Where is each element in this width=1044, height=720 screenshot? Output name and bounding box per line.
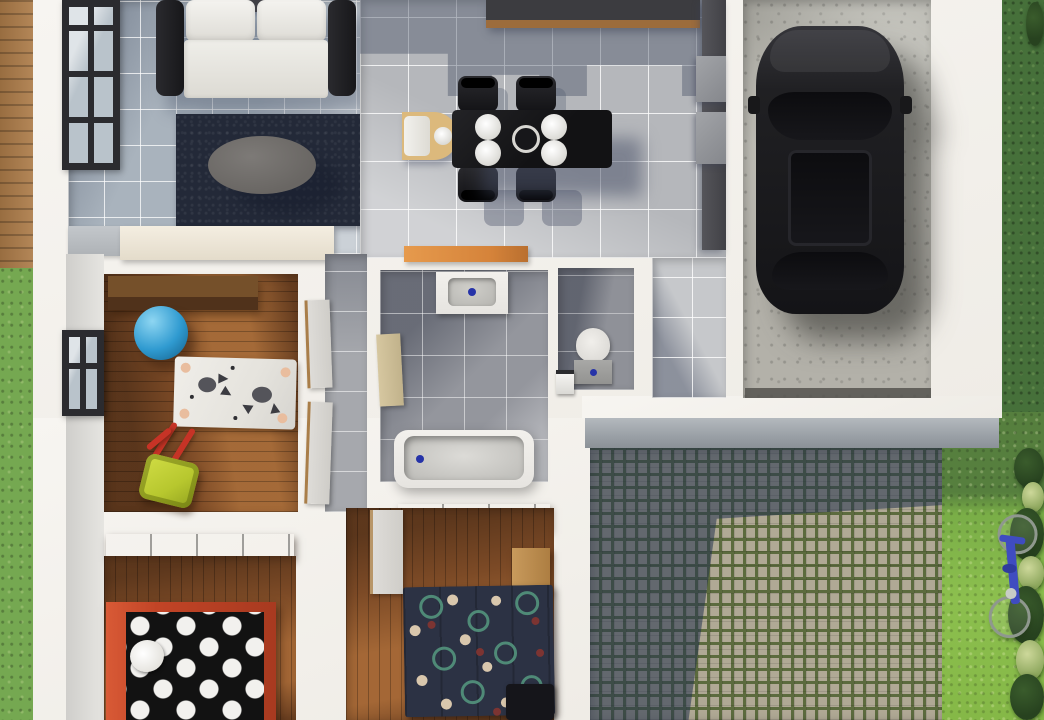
floor-plan-render (0, 0, 1044, 720)
rug-ring (467, 610, 489, 632)
bicycle-wheel-rear (988, 595, 1031, 638)
wardrobe (106, 534, 294, 558)
closet-door (304, 402, 333, 505)
living-room-window (62, 0, 120, 170)
toilet-tank (574, 360, 612, 384)
chair-back (519, 190, 553, 200)
car-mirror-left (748, 96, 760, 114)
window-glass (69, 337, 97, 409)
rug-dot (491, 596, 501, 606)
car-rear-window (772, 252, 888, 290)
bathroom-door (376, 333, 404, 406)
rug-dot (460, 634, 471, 645)
rug-ring (461, 680, 485, 704)
dining-chair (458, 166, 498, 202)
rug-dot (181, 363, 191, 373)
sideboard (120, 226, 334, 260)
toilet-flush-button (590, 369, 597, 376)
coffee-table (208, 136, 316, 194)
rug-dot (531, 617, 539, 625)
rug-ring (419, 595, 443, 619)
rug-dot (493, 708, 501, 716)
patio-ledge (585, 418, 999, 448)
bush (1026, 2, 1044, 46)
highchair-cushion (404, 116, 430, 156)
garage-threshold (745, 388, 931, 398)
patio-north-wall (582, 396, 1002, 418)
bush (1010, 674, 1044, 720)
sofa (156, 0, 356, 100)
bathtub (394, 430, 534, 488)
east-lawn-upper (1002, 0, 1044, 418)
rug-dot (427, 621, 435, 629)
animal-rug (173, 356, 297, 429)
sofa-seat (184, 40, 328, 98)
dining-chair (516, 166, 556, 202)
rug-ring (494, 641, 517, 664)
wheelbarrow-bin (137, 452, 201, 510)
highchair-plate (434, 127, 452, 145)
orange-island-counter (404, 246, 528, 262)
car-sunroof (788, 150, 872, 246)
rug-motif (218, 374, 228, 384)
sofa-back-cushion (186, 0, 255, 42)
sink-drain (468, 288, 476, 296)
rug-motif (269, 402, 280, 413)
sofa-armrest-left (156, 0, 184, 96)
rug-animal (252, 386, 272, 403)
bedroom-door (370, 510, 403, 594)
rug-dot (482, 662, 492, 672)
rug-dot (410, 625, 421, 636)
plate (541, 114, 567, 140)
rug-dot (416, 675, 427, 686)
rug-dot (231, 366, 235, 370)
plate (475, 114, 501, 140)
kitchen-counter (486, 0, 700, 28)
car-windshield (768, 92, 892, 140)
bicycle-seat (1002, 564, 1016, 573)
center-bowl (512, 125, 540, 153)
bathtub-drain (416, 455, 424, 463)
rug-dot (277, 413, 287, 423)
waste-bin (556, 370, 574, 394)
sink-vanity (436, 272, 508, 314)
car-mirror-right (900, 96, 912, 114)
highchair (402, 112, 458, 160)
hallway-floor (652, 258, 726, 398)
chair-back (519, 78, 553, 88)
kitchen-appliance (696, 112, 726, 164)
sofa-armrest-right (328, 0, 356, 96)
rug-dot (441, 698, 452, 709)
rug-dot (233, 416, 237, 420)
dining-chair (458, 76, 498, 112)
toy-wheelbarrow (128, 420, 208, 506)
rug-animal (198, 377, 216, 392)
rug-dot (536, 649, 544, 657)
kitchen-appliance (696, 56, 726, 102)
rug-dot (476, 648, 484, 656)
west-deck (0, 0, 33, 268)
kids-desk (108, 276, 258, 310)
rug-motif (220, 386, 234, 400)
west-interior-wall (66, 254, 104, 720)
plate (541, 140, 567, 166)
rug-dot (190, 395, 194, 399)
rug-dot (447, 594, 458, 605)
chair-back (461, 78, 495, 88)
car-hood-highlight (770, 30, 890, 72)
rug-ring (515, 591, 539, 615)
bed-corner (506, 684, 554, 720)
west-counter (68, 226, 120, 256)
window-glass (69, 7, 113, 163)
rug-ring (432, 646, 456, 670)
polka-dot-bed (106, 602, 276, 720)
west-lawn (0, 268, 33, 720)
rug-dot (179, 409, 189, 419)
rug-motif (240, 400, 254, 414)
dining-chair (516, 76, 556, 112)
sofa-back-cushion (257, 0, 326, 42)
plate (475, 140, 501, 166)
kids-room-window (62, 330, 104, 416)
closet-door (304, 300, 332, 389)
chair-back (461, 190, 495, 200)
blue-gym-ball (134, 306, 188, 360)
dining-table (452, 110, 612, 168)
black-car (756, 26, 904, 314)
toilet-seat (576, 328, 610, 362)
rug-dot (280, 367, 290, 377)
bicycle (982, 507, 1039, 651)
